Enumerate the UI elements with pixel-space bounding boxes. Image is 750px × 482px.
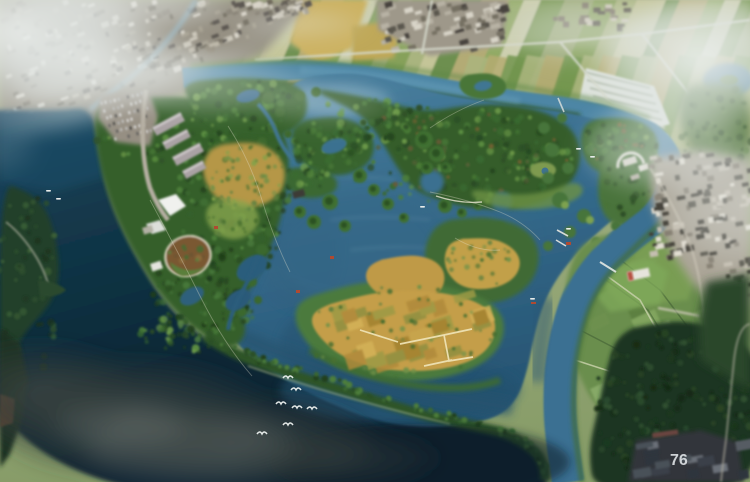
svg-text:76: 76	[670, 452, 688, 469]
